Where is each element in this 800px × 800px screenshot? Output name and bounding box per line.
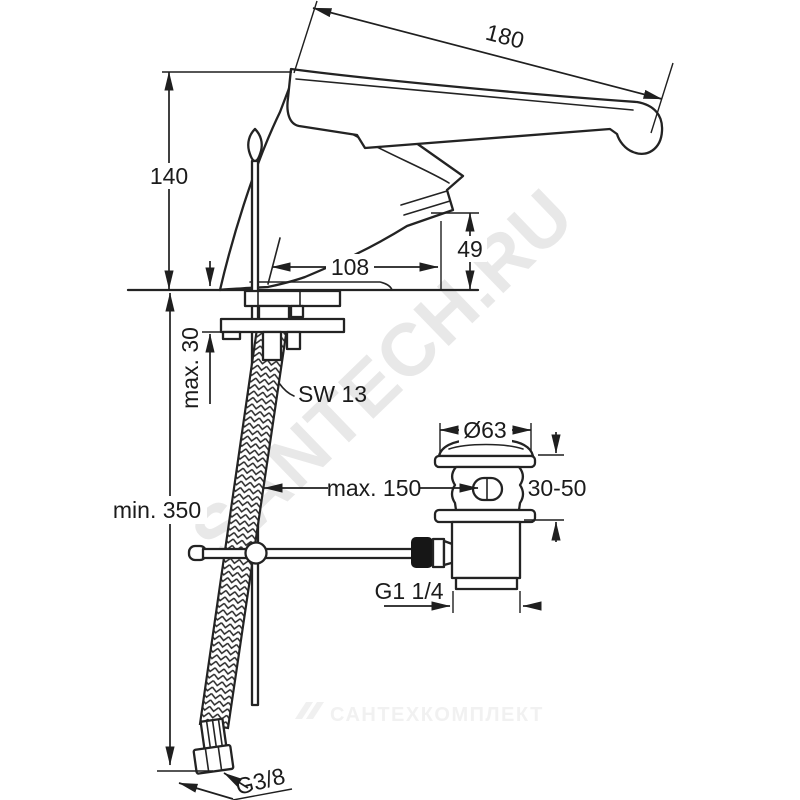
- watermark-footer: САНТЕХКОМПЛЕКТ: [330, 704, 544, 726]
- dim-label-body-height: 140: [150, 163, 188, 189]
- dim-label-spout-height: 49: [457, 236, 483, 262]
- dim-label-drain-thread: G1 1/4: [374, 578, 443, 604]
- drawing-page: SANTECH.RU САНТЕХКОМПЛЕКТ: [0, 0, 800, 800]
- hose-nut: [193, 745, 233, 774]
- watermark-logo: [295, 702, 324, 719]
- dim-label-spout-reach: 108: [331, 254, 369, 280]
- dim-clamping-range: 30-50: [524, 432, 586, 542]
- dim-label-min-hose-length: min. 350: [113, 497, 201, 523]
- pop-up-rod: [189, 546, 415, 560]
- shank-stub-2: [291, 306, 303, 317]
- clamp-stub: [263, 332, 281, 360]
- dim-label-drain-cap-diameter: Ø63: [463, 417, 506, 443]
- dim-label-supply-thread: G3/8: [233, 763, 288, 800]
- clamp-stub-2: [287, 332, 300, 349]
- drain-locknut: [435, 510, 535, 522]
- dim-label-handle-length: 180: [483, 19, 527, 54]
- pop-up-waste: [435, 440, 535, 589]
- drain-body-lower: [452, 522, 520, 578]
- drain-tailpiece: [456, 578, 517, 589]
- lift-rod-knob: [248, 129, 262, 161]
- lift-rod-lower: [252, 545, 258, 705]
- rod-connector: [411, 537, 455, 568]
- dim-label-max-distance: max. 150: [327, 475, 422, 501]
- mounting-collar: [245, 291, 340, 306]
- technical-drawing: SANTECH.RU САНТЕХКОМПЛЕКТ: [0, 0, 800, 800]
- drain-flange: [435, 456, 535, 467]
- dim-label-max-deck-thickness: max. 30: [177, 327, 203, 409]
- clamp-tab: [223, 332, 240, 339]
- dim-max-deck-thickness: max. 30: [177, 261, 224, 409]
- dim-label-wrench-size: SW 13: [298, 381, 367, 407]
- ball-joint: [246, 543, 267, 564]
- clamp-flange: [221, 319, 344, 332]
- dim-label-clamping-range: 30-50: [528, 475, 587, 501]
